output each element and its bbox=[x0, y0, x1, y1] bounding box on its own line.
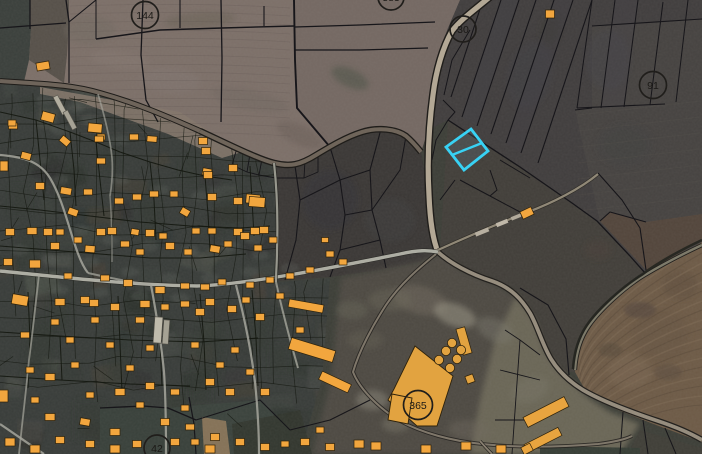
svg-text:42: 42 bbox=[151, 443, 163, 454]
svg-text:30: 30 bbox=[457, 24, 469, 36]
svg-text:91: 91 bbox=[647, 80, 659, 92]
svg-text:365: 365 bbox=[409, 400, 427, 412]
svg-text:144: 144 bbox=[136, 10, 154, 22]
svg-text:383: 383 bbox=[382, 0, 400, 4]
